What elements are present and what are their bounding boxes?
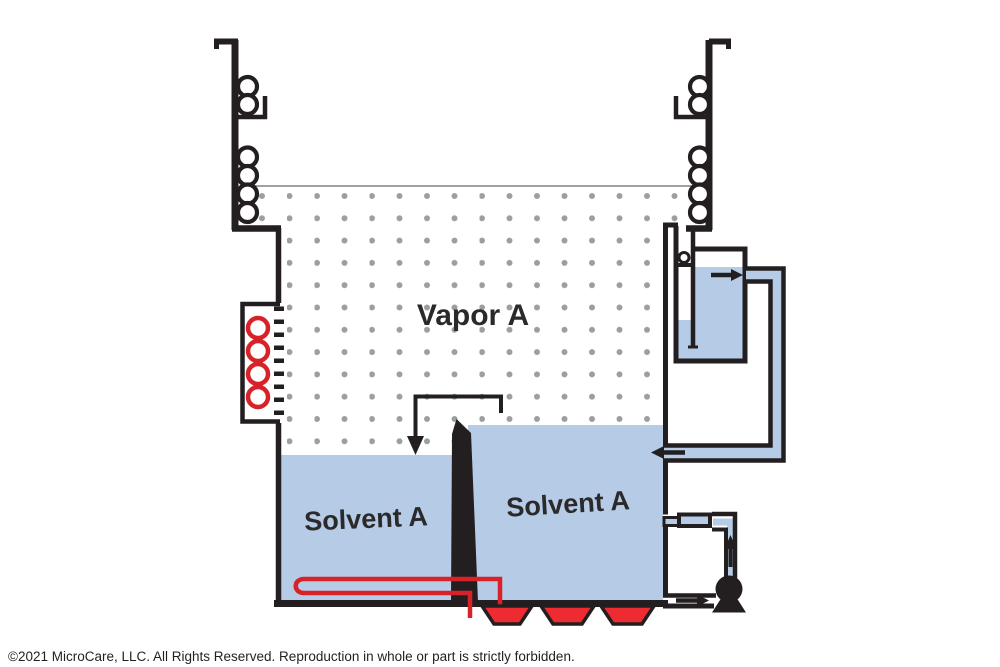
- solvent-left-label: Solvent A: [295, 501, 436, 538]
- filter-icon: [679, 515, 710, 527]
- refrigeration-coil-unit-icon: [243, 304, 285, 422]
- pump-filter-loop: [663, 514, 746, 613]
- copyright-notice: ©2021 MicroCare, LLC. All Rights Reserve…: [8, 649, 575, 664]
- sump-heaters-icon: [482, 606, 654, 624]
- vapor-degreaser-diagram: Vapor A Solvent A Solvent A ©2021 MicroC…: [0, 0, 1000, 667]
- pump-icon: [712, 576, 746, 613]
- diagram-linework: [0, 0, 1000, 667]
- float-icon: [679, 253, 689, 263]
- vapor-zone-label: Vapor A: [403, 299, 543, 333]
- perforated-plate-dashes: [274, 307, 284, 416]
- water-separator-icon: [676, 226, 745, 361]
